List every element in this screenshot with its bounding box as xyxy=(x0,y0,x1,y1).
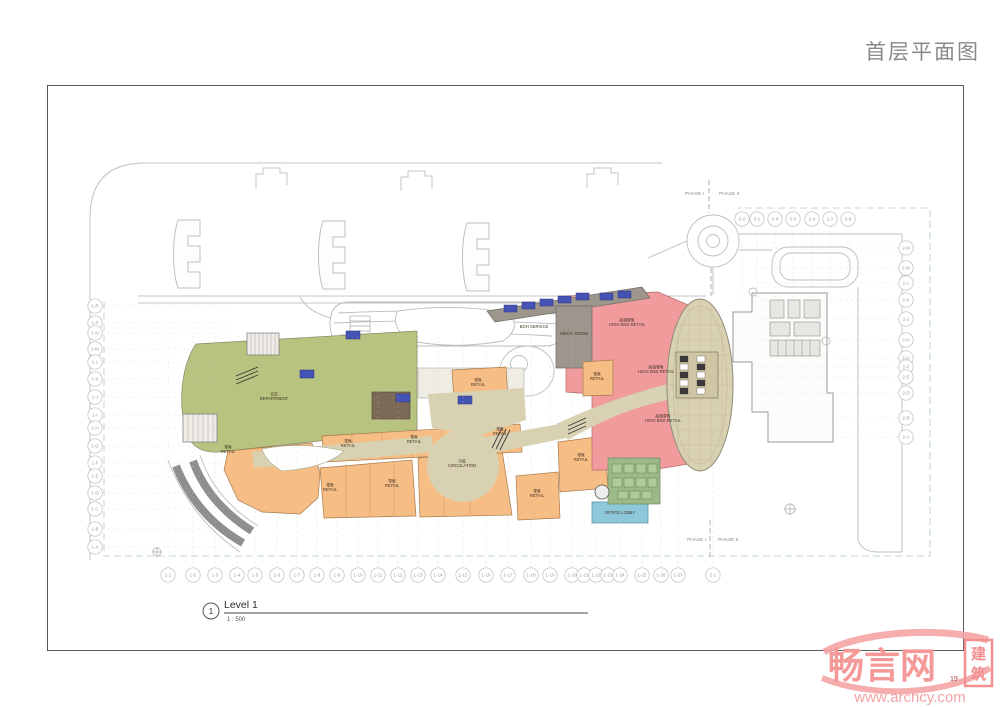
room-label: RETAIL xyxy=(341,443,356,448)
grid-bubble-label: 2-4 xyxy=(772,217,779,222)
view-number: 1 xyxy=(209,607,214,616)
grid-bubble-label: 1-G xyxy=(91,444,99,449)
room-label: DEPARTMENT xyxy=(260,396,289,401)
room-label: RETAIL xyxy=(530,493,545,498)
zone-office-core xyxy=(608,458,660,504)
room-label: HIGH END RETAIL xyxy=(645,418,682,423)
grid-bubble-label: 1-3 xyxy=(212,573,219,578)
grid-bubble-label: 1-2 xyxy=(190,573,197,578)
grid-bubble-label: 1-8 xyxy=(314,573,321,578)
grid-bubble-label: 1-13 xyxy=(413,573,423,578)
grid-bubble-label: 2-6 xyxy=(809,217,816,222)
grid-bubble-label: 1-M xyxy=(91,347,99,352)
grid-bubble-label: 1-B xyxy=(91,527,98,532)
drawing-sheet: 首层平面图 xyxy=(0,0,1000,707)
grid-bubble-label: 2-D xyxy=(902,391,910,396)
grid-bubble-label: 2-M xyxy=(902,266,910,271)
grid-bubble-label: 2-1 xyxy=(710,573,717,578)
watermark-brand: 畅言网 xyxy=(828,645,936,686)
grid-bubble-label: 2-8 xyxy=(845,217,852,222)
phase-label: PHASE I xyxy=(687,537,706,543)
view-scale: 1 : 500 xyxy=(227,617,246,623)
floor-plan-canvas: 1-11-21-31-41-51-61-71-81-91-101-111-121… xyxy=(0,0,1000,707)
grid-bubble-label: 2-E xyxy=(902,375,909,380)
room-label: RETAIL xyxy=(471,382,486,387)
grid-bubble-label: 1-23 xyxy=(603,573,613,578)
room-label: HIGH END RETAIL xyxy=(609,322,646,327)
phase-label: PHASE I xyxy=(685,191,704,197)
grid-bubble-label: 3-2 xyxy=(739,217,746,222)
grid-bubble-label: 2-F xyxy=(903,365,910,370)
grid-bubble-label: 1-6 xyxy=(274,573,281,578)
room-label: RETAIL xyxy=(323,487,338,492)
phase2-building xyxy=(733,288,833,442)
grid-bubble-label: 1-22 xyxy=(591,573,601,578)
grid-bubble-label: 1-L xyxy=(92,360,99,365)
atrium-ellipse xyxy=(667,299,733,471)
grid-bubble-label: 1-K xyxy=(91,377,99,382)
watermark: 畅言网 建 筑 www.archcy.com xyxy=(820,624,1000,707)
room-label: OFFICE LOBBY xyxy=(605,510,636,515)
grid-bubble-label: 1-P xyxy=(91,321,98,326)
watermark-seal-top-char: 建 xyxy=(971,645,987,663)
grid-bubble-label: 1-14 xyxy=(433,573,443,578)
room-label: BOH SERVICE xyxy=(520,324,549,329)
grid-bubble-label: 2-K xyxy=(902,298,910,303)
grid-bubble-label: 1-7 xyxy=(294,573,301,578)
grid-bubble-label: 1-4 xyxy=(234,573,241,578)
grid-bubble-label: 1-N xyxy=(91,331,98,336)
grid-bubble-label: 1-I xyxy=(92,413,97,418)
grid-bubble-label: 1-24 xyxy=(615,573,625,578)
grid-bubble-label: 1-5 xyxy=(252,573,259,578)
context-buildings xyxy=(174,168,619,291)
phase-label: PHASE II xyxy=(718,537,738,543)
grid-bubble-label: 1-21 xyxy=(579,573,589,578)
grid-bubble-label: 1-C xyxy=(91,507,99,512)
grid-bubble-label: 1-17 xyxy=(503,573,513,578)
grid-bubble-label: 1-11 xyxy=(374,573,383,578)
grid-bubble-label: 1-18 xyxy=(526,573,536,578)
room-label: RETAIL xyxy=(385,483,400,488)
atrium-escalator-core xyxy=(676,352,718,398)
grid-bubble-label: 2-J xyxy=(903,317,909,322)
zone-mech-room xyxy=(556,306,592,368)
roundabout xyxy=(687,215,739,267)
grid-bubble-label: 1-H xyxy=(91,426,98,431)
grid-bubble-label: 1-9 xyxy=(334,573,341,578)
room-label: RETAIL xyxy=(221,449,236,454)
room-label: CIRCULATION xyxy=(448,463,476,468)
grid-bubble-label: 1-26 xyxy=(656,573,666,578)
grid-bubble-label: 1-1 xyxy=(165,573,172,578)
phase-label: PHASE II xyxy=(719,191,739,197)
grid-bubble-label: 3-1 xyxy=(754,217,761,222)
grid-bubble-label: 1-D xyxy=(91,491,99,496)
grid-bubble-label: 2-H xyxy=(902,338,909,343)
grid-bubble-label: 1-J xyxy=(92,395,98,400)
grid-bubble-label: 2-B xyxy=(902,416,909,421)
watermark-url: www.archcy.com xyxy=(853,689,965,706)
grid-bubble-label: 1-A xyxy=(91,545,99,550)
room-label: HIGH END RETAIL xyxy=(638,369,675,374)
grid-bubble-label: 2-7 xyxy=(827,217,834,222)
grid-bubble-label: 1-19 xyxy=(545,573,555,578)
room-label: RETAIL xyxy=(590,376,605,381)
room-label: RETAIL xyxy=(407,439,422,444)
grid-bubble-label: 1-R xyxy=(91,304,99,309)
grid-bubble-label: 2-5 xyxy=(790,217,797,222)
grid-bubble-label: 1-25 xyxy=(637,573,647,578)
grid-bubble-label: 2-L xyxy=(903,281,910,286)
grid-bubble-label: 2-N xyxy=(902,246,909,251)
grid-bubble-label: 1-10 xyxy=(353,573,363,578)
grid-bubble-label: 1-16 xyxy=(481,573,491,578)
grid-bubble-label: 1-F xyxy=(92,461,99,466)
grid-bubble-label: 1-27 xyxy=(673,573,683,578)
room-label: MECH. ROOM xyxy=(560,331,588,336)
grid-bubble-label: 1-E xyxy=(91,474,98,479)
grid-bubble-label: 1-12 xyxy=(393,573,403,578)
room-label: RETAIL xyxy=(493,431,508,436)
page-number: 19 xyxy=(950,676,958,683)
grid-bubble-label: 1-20 xyxy=(567,573,577,578)
grid-bubble-label: 2-A xyxy=(902,435,910,440)
spiral-stair xyxy=(595,485,609,499)
view-name: Level 1 xyxy=(224,599,258,611)
parking-bay xyxy=(772,247,858,287)
grid-bubble-label: 1-15 xyxy=(458,573,468,578)
view-caption: 1 Level 1 1 : 500 xyxy=(203,599,588,623)
room-label: RETAIL xyxy=(574,457,589,462)
watermark-seal-bottom-char: 筑 xyxy=(970,665,986,683)
